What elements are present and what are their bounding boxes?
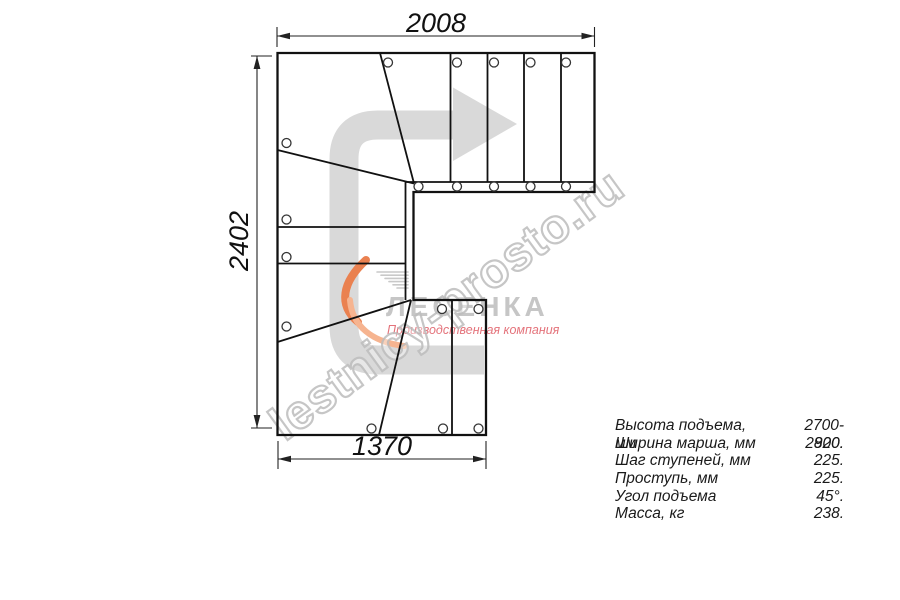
top-winder-line	[380, 53, 414, 184]
spec-row: Масса, кг 238.	[615, 505, 844, 523]
spec-value: 238.	[814, 505, 844, 523]
spec-row: Высота подъема, мм 2700-2820.	[615, 417, 844, 435]
spec-row: Шаг ступеней, мм 225.	[615, 452, 844, 470]
spec-label: Шаг ступеней, мм	[615, 452, 751, 470]
spec-value: 900.	[814, 435, 844, 453]
bolt-holes	[282, 58, 571, 433]
stair-step-lines	[278, 53, 595, 435]
dimension-left-label: 2402	[224, 211, 254, 272]
dimension-top-label: 2008	[405, 8, 466, 38]
spec-value: 45°.	[816, 488, 844, 506]
top-winder-line	[278, 150, 415, 184]
stair-outline	[278, 53, 595, 435]
specs-table: Высота подъема, мм 2700-2820. Ширина мар…	[615, 417, 844, 523]
bottom-winder-line	[379, 300, 411, 435]
spec-label: Угол подъема	[615, 488, 716, 506]
blueprint-page: ЛЕСЕНКА Производственная компания lestni…	[0, 0, 900, 600]
bottom-winder-line	[278, 300, 412, 342]
spec-value: 225.	[814, 452, 844, 470]
dimension-arrowheads	[254, 33, 595, 462]
spec-label: Высота подъема, мм	[615, 417, 768, 435]
spec-label: Ширина марша, мм	[615, 435, 756, 453]
dimension-lines	[251, 27, 595, 469]
spec-label: Масса, кг	[615, 505, 684, 523]
spec-label: Проступь, мм	[615, 470, 718, 488]
spec-value: 225.	[814, 470, 844, 488]
spec-value: 2700-2820.	[768, 417, 844, 435]
spec-row: Проступь, мм 225.	[615, 470, 844, 488]
spec-row: Угол подъема 45°.	[615, 488, 844, 506]
dimension-bottom-label: 1370	[352, 431, 412, 461]
